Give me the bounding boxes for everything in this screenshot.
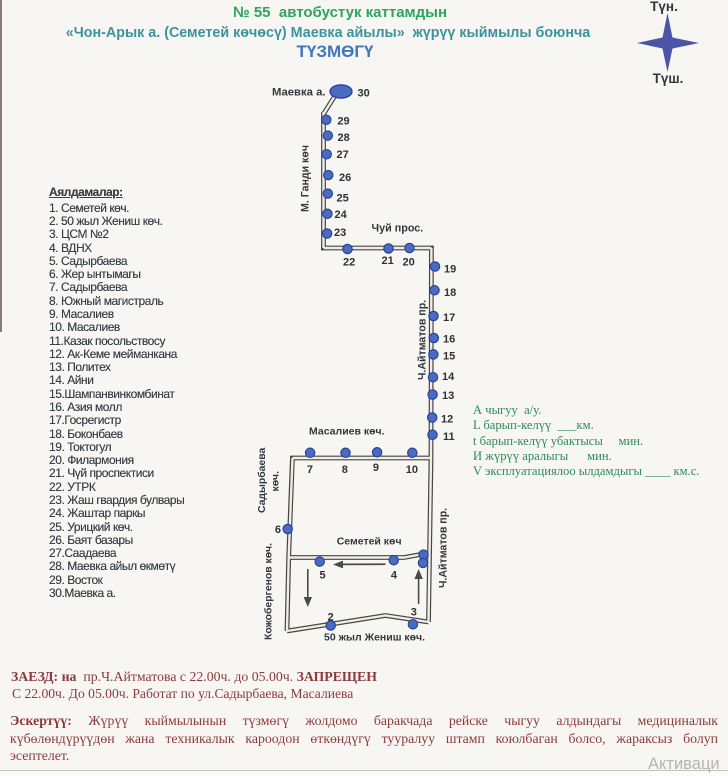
svg-text:М. Ганди көч: М. Ганди көч [300, 145, 312, 212]
svg-text:18: 18 [444, 287, 456, 299]
svg-text:28: 28 [338, 132, 350, 144]
svg-text:Чуй прос.: Чуй прос. [372, 223, 424, 235]
svg-text:Ч.Айтматов пр.: Ч.Айтматов пр. [438, 508, 450, 588]
svg-text:15: 15 [443, 350, 455, 362]
svg-text:50 жыл Жениш көч.: 50 жыл Жениш көч. [324, 632, 425, 644]
svg-text:30: 30 [358, 88, 370, 100]
svg-text:көч.: көч. [271, 471, 282, 492]
svg-text:8: 8 [342, 464, 348, 476]
svg-text:20: 20 [403, 257, 415, 269]
svg-text:26: 26 [339, 172, 351, 184]
svg-text:16: 16 [443, 333, 455, 345]
svg-text:13: 13 [442, 390, 454, 402]
svg-text:5: 5 [320, 570, 326, 582]
svg-text:7: 7 [307, 464, 313, 476]
svg-text:14: 14 [442, 371, 455, 383]
svg-text:22: 22 [343, 257, 355, 269]
svg-text:24: 24 [335, 209, 348, 221]
svg-text:Ч.Айтматов пр.: Ч.Айтматов пр. [417, 300, 429, 380]
svg-text:19: 19 [444, 264, 456, 276]
svg-text:9: 9 [373, 462, 379, 474]
svg-text:25: 25 [337, 193, 349, 205]
svg-text:Маевка а.: Маевка а. [272, 87, 326, 99]
svg-text:10: 10 [406, 464, 418, 476]
svg-text:21: 21 [382, 255, 394, 267]
svg-text:23: 23 [334, 227, 346, 239]
svg-text:6: 6 [275, 524, 281, 536]
svg-text:17: 17 [443, 312, 455, 324]
svg-text:Кожобергенов көч.: Кожобергенов көч. [263, 543, 275, 640]
svg-text:2: 2 [328, 612, 334, 624]
svg-text:Масалиев көч.: Масалиев көч. [309, 426, 385, 438]
svg-text:12: 12 [441, 414, 453, 426]
svg-text:Садырбаева: Садырбаева [256, 448, 268, 513]
svg-text:27: 27 [337, 149, 349, 161]
svg-text:3: 3 [411, 607, 417, 619]
svg-text:11: 11 [443, 431, 455, 443]
svg-text:29: 29 [337, 115, 349, 127]
svg-text:Семетей көч: Семетей көч [337, 535, 402, 547]
svg-text:4: 4 [391, 570, 398, 582]
